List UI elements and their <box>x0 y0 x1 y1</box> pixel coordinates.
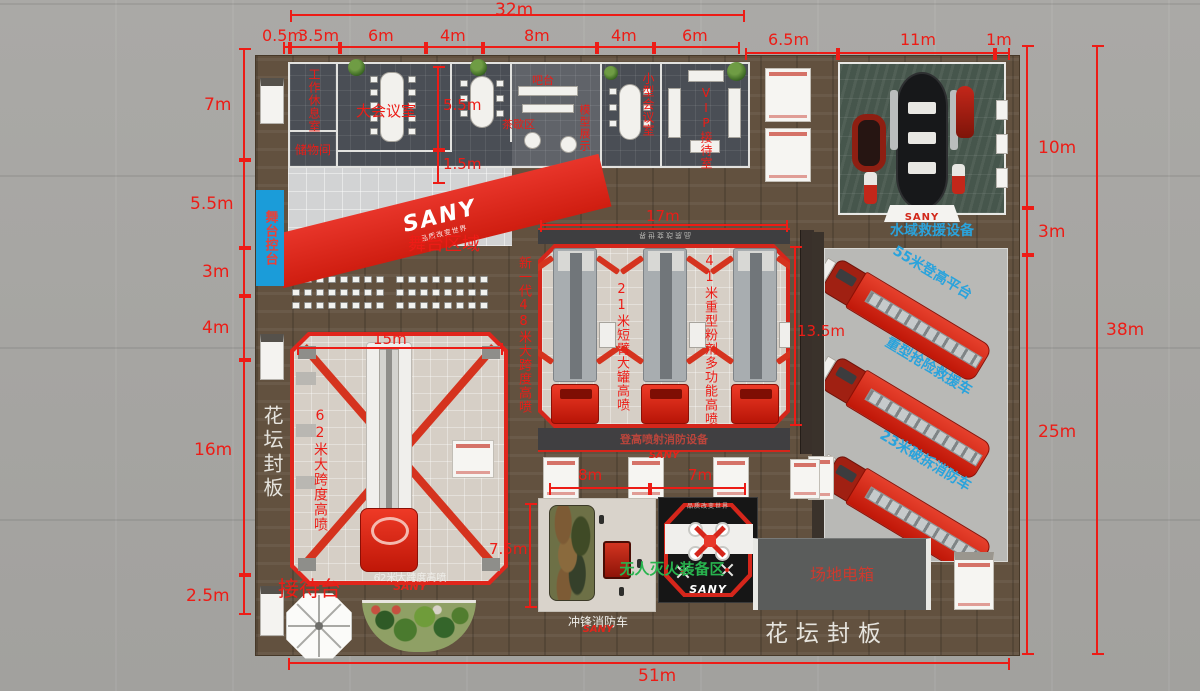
helipad-brand: SANY <box>659 583 757 596</box>
unmanned-zone-label: 无人灭火装备区 <box>602 558 742 579</box>
rescue-boat <box>896 72 948 210</box>
right-zone-wall <box>812 232 824 562</box>
vip-sofa <box>728 88 741 138</box>
assault-zone <box>538 498 656 612</box>
vip-sofa <box>668 88 681 138</box>
dim-right-0: 10m <box>1038 138 1076 158</box>
dim-top-seg-4: 8m <box>524 26 550 45</box>
wall-panel <box>996 168 1008 188</box>
dim-left-1: 5.5m <box>190 194 234 214</box>
speedboat <box>956 86 974 138</box>
outrigger-pad <box>482 558 500 571</box>
dim-top-seg-5: 4m <box>611 26 637 45</box>
right-zone-kiosk <box>954 552 994 610</box>
room-work-lounge: 工作休息室 <box>290 64 338 132</box>
bar-label: 吧台 <box>532 72 554 88</box>
drone-body <box>704 535 716 547</box>
powder41-label: 41米重型粉剂多功能高喷 <box>700 254 719 426</box>
right-truck-zone <box>824 248 1008 562</box>
dim-left-3: 4m <box>202 318 229 338</box>
floor-plan-canvas: 工作休息室 储物间 大会议室 吧台 茶歇区 模型展示 小型会议室 <box>0 0 1200 691</box>
dim-assault-depth: 7.5m <box>489 540 527 558</box>
plant <box>604 66 618 80</box>
jetski <box>864 172 877 204</box>
power-box-label: 场地电箱 <box>758 561 926 585</box>
utility-box <box>260 334 284 380</box>
dim-left-2: 3m <box>202 262 229 282</box>
helipad: 品质改变世界 SANY <box>658 497 758 603</box>
room-vip-label: VIP接待室 <box>698 86 715 170</box>
zone-62m-label: 62米大跨度高喷 <box>310 408 330 532</box>
room-work-lounge-label: 工作休息室 <box>306 68 323 133</box>
dim-center-width: 17m <box>646 207 680 225</box>
flowerbed-bottom-label: 花坛封板 <box>765 614 889 648</box>
center-zone-brand: SANY <box>649 450 680 461</box>
room-main-meeting: 大会议室 <box>338 64 452 152</box>
dim-bottom-total: 51m <box>638 666 676 686</box>
camo-vehicle <box>549 505 595 601</box>
life-raft <box>852 114 886 172</box>
aerial-fire-truck <box>643 248 687 424</box>
room-main-meeting-label: 大会议室 <box>356 100 416 121</box>
dim-left-0: 7m <box>204 95 231 115</box>
center-wall-slogan: 品质改变世界 <box>538 230 790 243</box>
dim-room-depth: 5.5m <box>443 96 481 114</box>
dim-top-seg-0: 0.5m <box>262 26 303 45</box>
center-zone <box>538 244 790 428</box>
wall-panel <box>996 134 1008 154</box>
stage-control-label: 舞台控台 <box>261 210 280 266</box>
dim-right-2: 25m <box>1038 422 1076 442</box>
aerial-fire-truck <box>553 248 597 424</box>
dim-right-total: 38m <box>1106 320 1144 340</box>
jetski <box>952 164 965 194</box>
room-small-meeting-label: 小型会议室 <box>640 72 657 137</box>
figure <box>599 515 604 524</box>
vip-sofa <box>688 70 724 82</box>
water-zone-label: 水域救援设备 <box>862 220 1002 240</box>
counter <box>790 459 820 499</box>
plant <box>470 59 487 76</box>
tea-break-label: 茶歇区 <box>502 116 535 132</box>
dim-topright-seg-1: 11m <box>900 30 936 49</box>
room-storage-label: 储物间 <box>295 141 331 158</box>
dim-left-5: 2.5m <box>186 586 230 606</box>
bar-tea-area: 吧台 茶歇区 模型展示 <box>512 64 600 166</box>
newgen48-label: 新一代48米大跨度高喷 <box>514 256 533 414</box>
plant <box>727 62 746 81</box>
stage-area-label: 舞台区域 <box>408 230 480 256</box>
dim-topright-seg-0: 6.5m <box>768 30 809 49</box>
utility-box <box>260 78 284 124</box>
dim-counter-left: 8m <box>578 466 602 484</box>
assault-brand: SANY <box>536 624 660 635</box>
dim-top-seg-6: 6m <box>682 26 708 45</box>
helipad-slogan: 品质改变世界 <box>659 501 757 510</box>
center-zone-bottom-wall: 登高喷射消防设备 SANY <box>538 428 790 452</box>
round-table <box>560 136 577 153</box>
dim-top-total: 32m <box>495 0 533 20</box>
dim-right-1: 3m <box>1038 222 1065 242</box>
round-table <box>524 132 541 149</box>
dim-left-4: 16m <box>194 440 232 460</box>
power-box: 场地电箱 <box>753 538 931 610</box>
zone-62m-kiosk <box>452 440 494 478</box>
dim-top-seg-3: 4m <box>440 26 466 45</box>
outrigger-pad <box>298 558 316 571</box>
center-zone-caption: 登高喷射消防设备 <box>620 433 708 446</box>
zone-62m-brand: SANY <box>340 580 480 593</box>
model-display-counter <box>522 104 574 113</box>
dim-truck62-width: 15m <box>373 330 407 348</box>
boom21-label: 21米短臂大罐高喷 <box>612 282 631 412</box>
dim-top-seg-1: 3.5m <box>298 26 339 45</box>
model-display-label: 模型展示 <box>576 104 592 152</box>
info-desk <box>765 128 811 182</box>
aerial-fire-truck <box>733 248 777 424</box>
water-pool <box>838 62 1006 215</box>
reception-desk-label: 接待台 <box>278 573 341 603</box>
truck-62m-cab <box>360 508 418 572</box>
info-desk <box>765 68 811 122</box>
dim-top-seg-2: 6m <box>368 26 394 45</box>
plant <box>348 59 365 76</box>
dim-corridor: 1.5m <box>443 155 481 173</box>
wall-panel <box>996 100 1008 120</box>
room-storage: 储物间 <box>290 132 338 166</box>
dim-topright-seg-2: 1m <box>986 30 1012 49</box>
stage-control: 舞台控台 <box>256 190 284 286</box>
dim-center-depth: 13.5m <box>797 322 845 340</box>
flowerbed-left-label: 花坛封板 <box>258 405 287 501</box>
figure <box>619 587 624 596</box>
center-zone-top-wall: 品质改变世界 <box>538 228 790 244</box>
ramp-step <box>296 372 316 385</box>
dim-counter-right: 7m <box>688 466 712 484</box>
small-meeting-table <box>619 84 641 140</box>
